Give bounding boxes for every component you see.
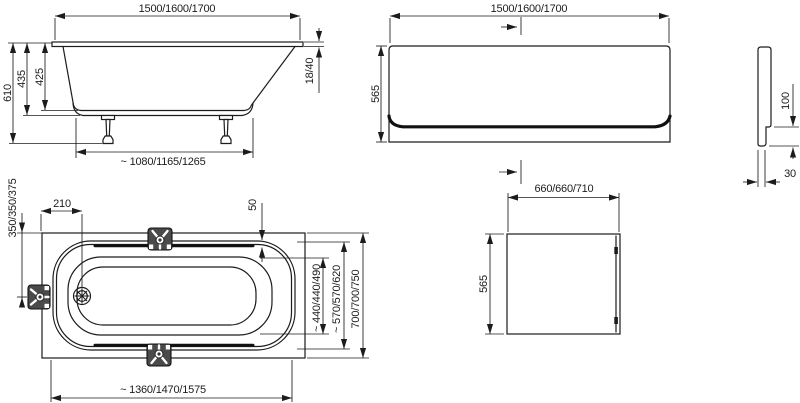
dim-drain-from-end: 210 bbox=[53, 198, 71, 210]
dim-bath-length: 1500/1600/1700 bbox=[139, 3, 216, 15]
dim-rim-width: ~ 570/570/620 bbox=[331, 265, 343, 333]
dim-inner-width: ~ 440/440/490 bbox=[311, 264, 323, 332]
dim-bath-height-total: 610 bbox=[2, 84, 14, 102]
dim-inner-length: ~ 1360/1470/1575 bbox=[120, 384, 206, 396]
dim-bath-depth-outer: 435 bbox=[16, 70, 28, 88]
dim-profile-step-height: 100 bbox=[780, 92, 792, 110]
dim-overall-width: 700/700/750 bbox=[350, 269, 362, 328]
dim-rim-offset: 50 bbox=[247, 199, 259, 211]
drain-icon bbox=[74, 288, 91, 305]
dim-drain-from-side: 350/350/375 bbox=[7, 178, 19, 237]
dim-end-panel-width: 660/660/710 bbox=[535, 183, 594, 195]
dim-profile-base-depth: 30 bbox=[784, 168, 796, 180]
bath-rim-edge bbox=[52, 42, 303, 47]
end-panel-outline bbox=[507, 234, 620, 334]
dim-rim-thickness: 18/40 bbox=[304, 58, 316, 85]
dim-panel-height: 565 bbox=[370, 85, 382, 103]
end-panel-clip-top bbox=[614, 247, 618, 254]
dim-end-panel-height: 565 bbox=[478, 275, 490, 293]
dim-bath-bottom-length: ~ 1080/1165/1265 bbox=[121, 156, 206, 168]
mounting-bracket-icon-top bbox=[148, 228, 172, 250]
drawing-svg: 1500/1600/1700 610 435 425 bbox=[0, 0, 800, 403]
dim-panel-width: 1500/1600/1700 bbox=[491, 3, 568, 15]
dim-bath-depth-inner: 425 bbox=[34, 68, 46, 86]
mounting-bracket-icon-left bbox=[28, 285, 50, 309]
end-panel-clip-bottom bbox=[614, 317, 618, 324]
technical-drawing-bathtub: 1500/1600/1700 610 435 425 bbox=[0, 0, 800, 403]
mounting-bracket-icon-bottom bbox=[147, 344, 171, 366]
